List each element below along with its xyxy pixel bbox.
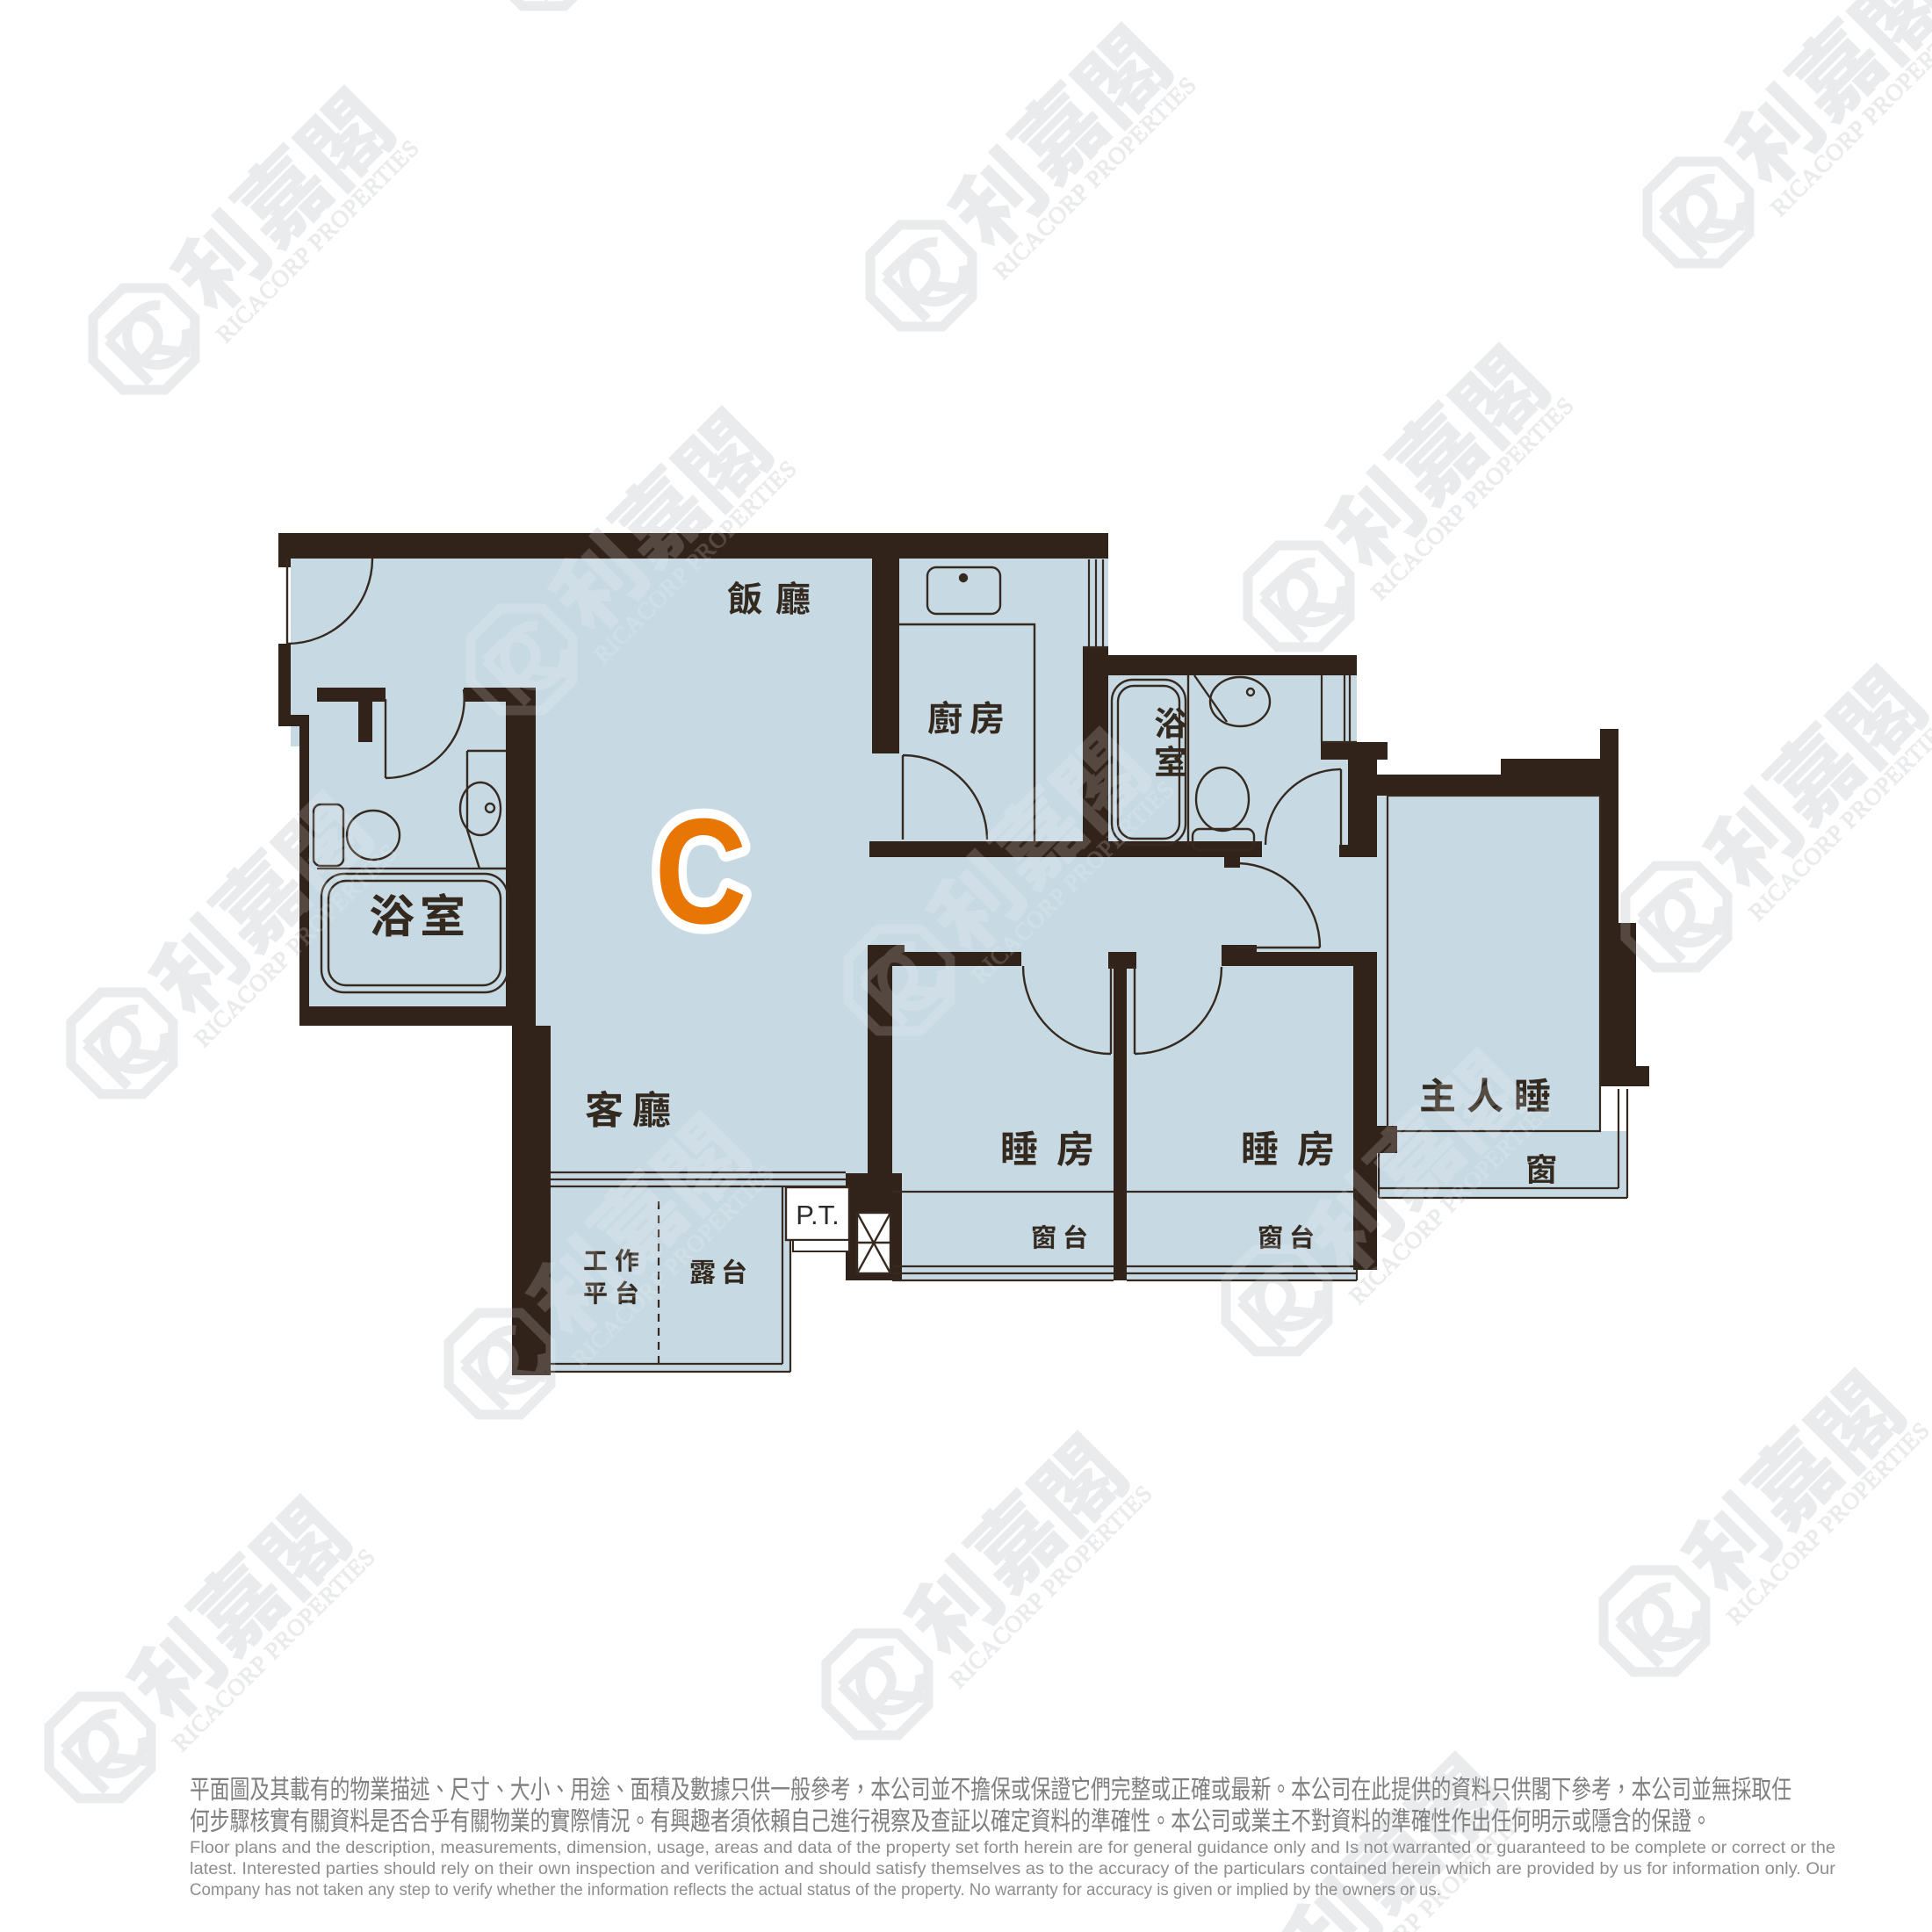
svg-text:C: C — [655, 787, 747, 955]
svg-text:latest. Interested parties sho: latest. Interested parties should rely o… — [190, 1860, 1836, 1878]
svg-text:P.T.: P.T. — [796, 1200, 839, 1230]
svg-text:Floor plans and the descriptio: Floor plans and the description, measure… — [190, 1839, 1835, 1857]
svg-text:Company has not taken any step: Company has not taken any step to verify… — [190, 1881, 1441, 1900]
